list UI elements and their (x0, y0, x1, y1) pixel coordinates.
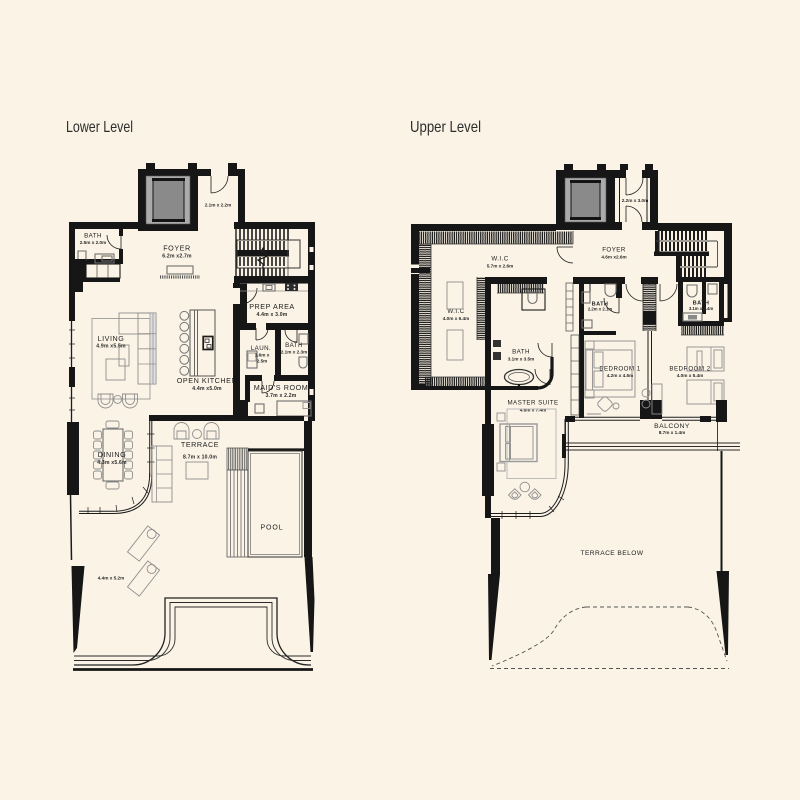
svg-text:4.6m x2.6m: 4.6m x2.6m (601, 255, 626, 260)
svg-text:BALCONY: BALCONY (654, 423, 690, 430)
svg-text:TERRACE: TERRACE (181, 440, 219, 449)
svg-text:DINING: DINING (98, 450, 126, 459)
svg-text:MAID'S ROOM: MAID'S ROOM (254, 383, 309, 392)
svg-text:POOL: POOL (260, 525, 283, 532)
svg-text:2.2m x 2.1m: 2.2m x 2.1m (588, 307, 613, 312)
svg-text:1.6m x: 1.6m x (255, 353, 270, 358)
svg-text:LIVING: LIVING (98, 334, 125, 343)
svg-text:4.9m x5.5m: 4.9m x5.5m (96, 344, 126, 350)
svg-text:FOYER: FOYER (163, 244, 191, 253)
svg-text:BATH: BATH (84, 233, 102, 240)
svg-text:3.1m x 3.5m: 3.1m x 3.5m (508, 357, 535, 362)
svg-text:4.0m x 6.4m: 4.0m x 6.4m (443, 316, 470, 321)
svg-text:2.2m x 3.0m: 2.2m x 3.0m (622, 198, 649, 203)
svg-text:PREP AREA: PREP AREA (249, 302, 295, 311)
svg-text:Lower Level: Lower Level (66, 119, 133, 136)
svg-text:MASTER SUITE: MASTER SUITE (507, 400, 558, 407)
svg-text:2.5m: 2.5m (257, 359, 268, 364)
svg-text:3.1m x 2.4m: 3.1m x 2.4m (689, 306, 714, 311)
svg-text:4.2m x 4.5m: 4.2m x 4.5m (607, 373, 634, 378)
svg-text:OPEN KITCHEN: OPEN KITCHEN (177, 376, 238, 385)
svg-text:5.7m x 2.6m: 5.7m x 2.6m (487, 264, 514, 269)
svg-text:3.7m x 2.2m: 3.7m x 2.2m (265, 393, 296, 399)
svg-text:8.7m x 10.0m: 8.7m x 10.0m (183, 455, 217, 461)
svg-text:4.3m x5.6m: 4.3m x5.6m (97, 460, 127, 466)
svg-text:4.4m x 5.2m: 4.4m x 5.2m (98, 576, 125, 581)
svg-text:BATH: BATH (512, 349, 530, 356)
svg-text:BEDROOM 1: BEDROOM 1 (599, 366, 640, 373)
svg-text:W.I.C: W.I.C (491, 256, 508, 263)
svg-text:4.4m x5.0m: 4.4m x5.0m (192, 386, 222, 392)
svg-text:BATH: BATH (285, 342, 303, 349)
svg-text:8.7m x 1.4m: 8.7m x 1.4m (659, 430, 686, 435)
svg-text:6.2m x2.7m: 6.2m x2.7m (162, 254, 192, 260)
svg-text:LAUN.: LAUN. (251, 345, 271, 352)
svg-text:TERRACE BELOW: TERRACE BELOW (580, 550, 643, 557)
svg-text:4.4m x 3.0m: 4.4m x 3.0m (256, 312, 287, 318)
svg-text:FOYER: FOYER (602, 247, 626, 254)
svg-text:BEDROOM 2: BEDROOM 2 (669, 366, 710, 373)
svg-text:2.1m x 2.3m: 2.1m x 2.3m (281, 350, 308, 355)
svg-text:2.5m x 2.0m: 2.5m x 2.0m (80, 240, 107, 245)
svg-text:4.6m x 7.4m: 4.6m x 7.4m (520, 408, 547, 413)
svg-text:4.0m x 5.4m: 4.0m x 5.4m (677, 373, 704, 378)
svg-text:Upper Level: Upper Level (410, 119, 481, 136)
svg-text:2.1m x 2.2m: 2.1m x 2.2m (205, 203, 232, 208)
